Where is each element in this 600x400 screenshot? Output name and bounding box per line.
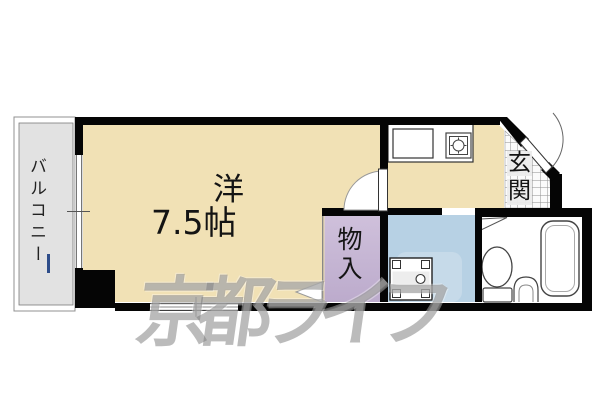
wall-kitchen-divider xyxy=(380,117,388,169)
washing-machine-pan xyxy=(390,258,432,300)
kitchen-door-leaf xyxy=(379,169,388,211)
balcony-drain-mark xyxy=(47,254,50,273)
room-type-label: 洋 xyxy=(213,175,244,206)
pillar xyxy=(77,270,115,308)
balcony-label: バルコニー xyxy=(27,157,44,267)
entrance-label: 玄 関 xyxy=(507,151,532,205)
wall-closet-right xyxy=(380,208,388,302)
entrance-label-char2: 関 xyxy=(507,179,532,204)
wall-left-upper xyxy=(75,117,83,155)
stove-icon xyxy=(446,133,471,158)
wash-basin xyxy=(514,277,538,302)
wall-right xyxy=(582,208,592,310)
wall-washroom-top xyxy=(388,208,442,215)
floor-plan: バルコニー 洋 7.5帖 物入 玄 関 京都ライフ xyxy=(0,0,600,400)
entrance-door-swing xyxy=(549,113,563,170)
entrance-label-char1: 玄 xyxy=(507,151,532,176)
wall-bathroom-left xyxy=(475,208,482,302)
closet-label: 物入 xyxy=(336,226,361,284)
room-size-label: 7.5帖 xyxy=(151,206,236,239)
wall-top xyxy=(75,117,500,125)
toilet-tank xyxy=(483,288,512,302)
bathtub xyxy=(541,221,579,296)
kitchen-fixtures xyxy=(388,123,473,162)
wall-bathroom-top xyxy=(478,208,592,217)
toilet-bowl xyxy=(482,247,512,287)
kitchen-sink xyxy=(393,129,433,158)
